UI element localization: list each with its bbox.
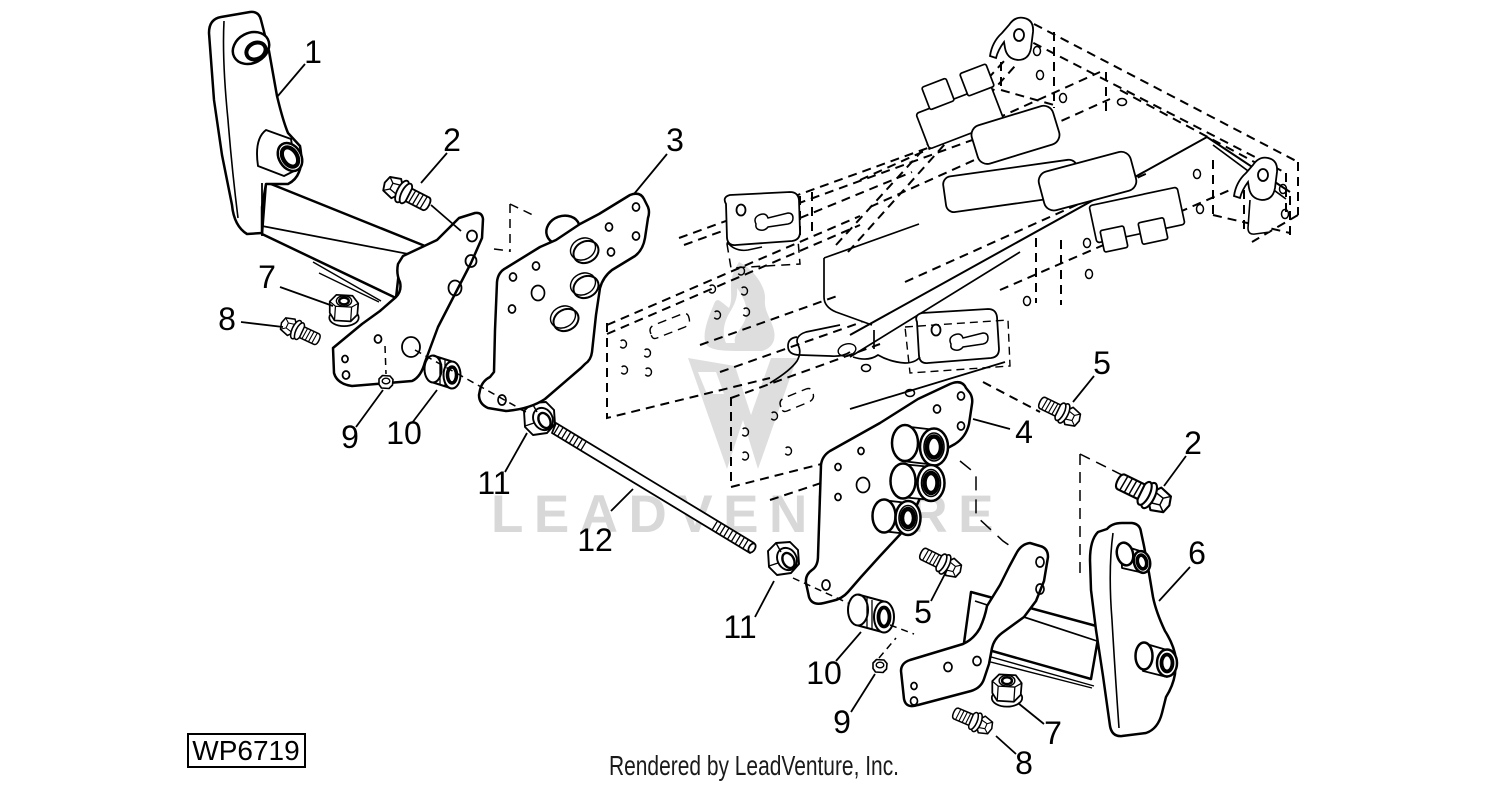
svg-text:10: 10	[806, 655, 842, 691]
svg-text:Rendered by LeadVenture, Inc.: Rendered by LeadVenture, Inc.	[609, 750, 899, 781]
svg-text:8: 8	[218, 301, 236, 337]
svg-text:11: 11	[477, 465, 510, 501]
svg-text:7: 7	[1044, 715, 1062, 751]
svg-text:12: 12	[577, 522, 613, 558]
svg-text:4: 4	[1015, 414, 1033, 450]
svg-text:9: 9	[341, 419, 359, 455]
svg-text:8: 8	[1015, 745, 1033, 781]
svg-text:5: 5	[914, 594, 932, 630]
svg-text:9: 9	[833, 704, 851, 740]
svg-text:3: 3	[666, 122, 684, 158]
svg-text:2: 2	[1184, 425, 1202, 461]
svg-text:5: 5	[1093, 345, 1111, 381]
svg-text:11: 11	[723, 609, 756, 645]
svg-text:10: 10	[386, 415, 422, 451]
svg-text:2: 2	[443, 122, 461, 158]
svg-text:1: 1	[304, 34, 322, 70]
svg-text:7: 7	[258, 259, 276, 295]
svg-text:WP6719: WP6719	[192, 735, 299, 766]
svg-text:6: 6	[1188, 535, 1206, 571]
